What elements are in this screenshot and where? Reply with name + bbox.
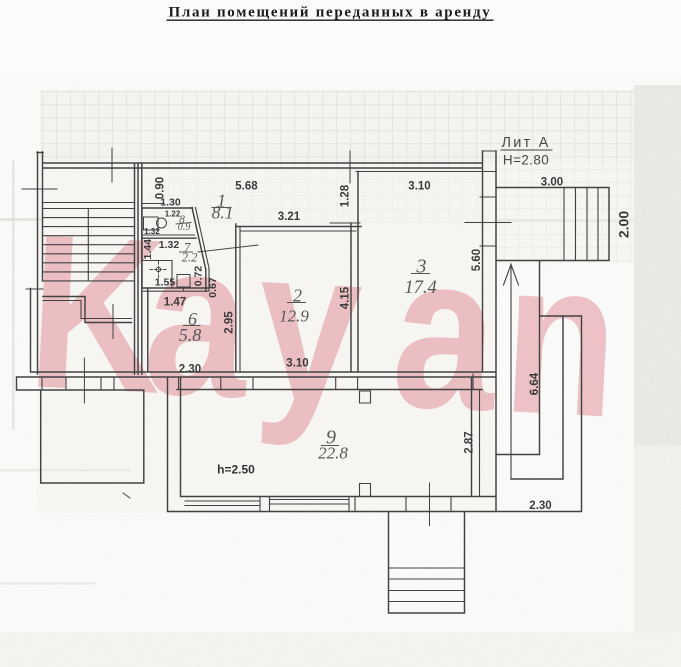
svg-text:6.64: 6.64 — [529, 372, 541, 395]
svg-text:12.9: 12.9 — [279, 307, 309, 326]
svg-text:0.72: 0.72 — [193, 266, 205, 287]
svg-text:3.10: 3.10 — [408, 181, 430, 193]
svg-text:3.10: 3.10 — [286, 358, 308, 370]
svg-text:22.8: 22.8 — [318, 444, 348, 463]
svg-text:2.87: 2.87 — [464, 431, 476, 453]
svg-text:3: 3 — [416, 256, 427, 278]
svg-text:0.9: 0.9 — [178, 222, 191, 233]
svg-text:1.47: 1.47 — [164, 297, 186, 309]
svg-text:3.00: 3.00 — [541, 177, 563, 189]
svg-text:1.32: 1.32 — [144, 227, 160, 236]
svg-text:2.30: 2.30 — [529, 500, 551, 512]
svg-text:0.67: 0.67 — [207, 277, 219, 298]
svg-text:17.4: 17.4 — [404, 278, 436, 298]
svg-text:4.15: 4.15 — [340, 286, 352, 309]
svg-text:h=2.50: h=2.50 — [217, 463, 255, 477]
svg-text:H=2.80: H=2.80 — [503, 153, 549, 168]
svg-text:2: 2 — [293, 286, 302, 306]
svg-text:2.30: 2.30 — [179, 364, 201, 376]
svg-text:2.00: 2.00 — [616, 211, 632, 238]
svg-text:3.21: 3.21 — [278, 211, 301, 223]
svg-text:0.90: 0.90 — [155, 177, 167, 199]
svg-text:2.95: 2.95 — [224, 311, 236, 334]
svg-text:8.1: 8.1 — [212, 203, 234, 223]
svg-text:1.44: 1.44 — [142, 239, 154, 260]
svg-text:1.32: 1.32 — [159, 239, 180, 251]
svg-text:Kayan: Kayan — [24, 188, 624, 464]
svg-text:2.2: 2.2 — [182, 251, 198, 265]
svg-text:5.8: 5.8 — [179, 325, 202, 345]
svg-text:5.60: 5.60 — [471, 249, 483, 271]
svg-text:5.68: 5.68 — [235, 181, 258, 193]
svg-text:1.28: 1.28 — [340, 184, 352, 207]
svg-text:Лит А: Лит А — [502, 135, 551, 151]
svg-text:План помещений переданных в ар: План помещений переданных в аренду — [168, 5, 491, 21]
svg-text:1.55: 1.55 — [155, 277, 176, 289]
